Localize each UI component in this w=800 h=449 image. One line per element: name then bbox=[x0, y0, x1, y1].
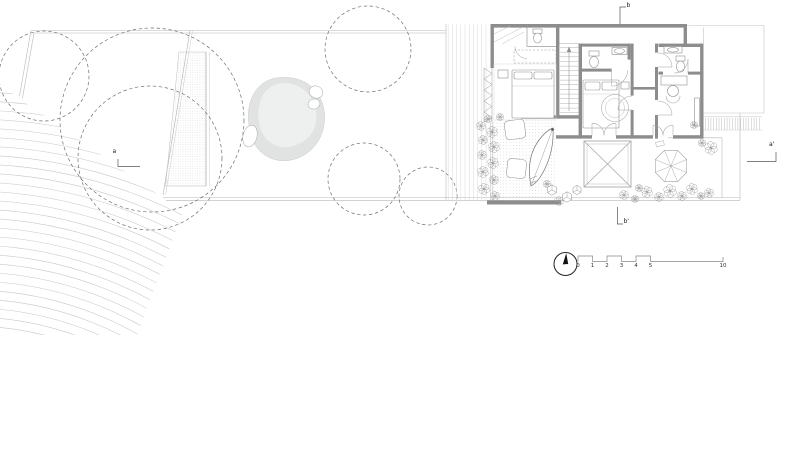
flower-icon bbox=[631, 195, 638, 202]
section-label-a: a bbox=[113, 149, 117, 155]
scale-label-3: 3 bbox=[620, 263, 624, 269]
flower-icon bbox=[697, 192, 704, 199]
flower-petal bbox=[624, 191, 628, 195]
contour-line bbox=[0, 326, 274, 449]
scale-label-5: 5 bbox=[649, 263, 653, 269]
flower-petal bbox=[639, 185, 642, 188]
gravel-driveway bbox=[163, 31, 210, 196]
flower-icon bbox=[484, 115, 491, 122]
section-label-b: b bbox=[627, 3, 631, 9]
shelf bbox=[695, 98, 700, 126]
toilet-tank bbox=[589, 51, 599, 56]
tree-canopy bbox=[0, 31, 89, 121]
rock-cube-icon bbox=[573, 185, 581, 194]
section-line-a-prime bbox=[747, 152, 776, 162]
flower-petal bbox=[494, 143, 499, 148]
contour-line bbox=[0, 164, 436, 449]
staircase bbox=[560, 44, 579, 113]
parasol-icon bbox=[655, 150, 686, 181]
scale-label-0: 0 bbox=[576, 263, 580, 269]
desk bbox=[661, 76, 687, 85]
bedside-table bbox=[621, 82, 629, 89]
toilet-tank bbox=[676, 56, 685, 61]
tree-canopies bbox=[0, 6, 457, 230]
site-plan-canvas: b b' a a' 0 1 2 3 4 5 10 bbox=[0, 0, 800, 449]
rock-cube-icon bbox=[563, 192, 572, 202]
flower-icon bbox=[690, 121, 697, 128]
bench bbox=[656, 141, 665, 147]
terrain-contours bbox=[0, 92, 508, 449]
contour-line bbox=[0, 146, 454, 449]
contour-line bbox=[0, 218, 382, 449]
flower-petal bbox=[647, 188, 652, 193]
toilet-icon bbox=[590, 57, 599, 68]
contour-line bbox=[0, 155, 445, 449]
sink-basin-icon bbox=[615, 49, 625, 54]
scale-label-4: 4 bbox=[634, 263, 638, 269]
flower-petal bbox=[484, 185, 489, 190]
contour-line bbox=[0, 254, 346, 449]
contour-line bbox=[0, 281, 319, 449]
bedside-table bbox=[498, 70, 508, 78]
contour-line bbox=[0, 290, 310, 449]
stepping-stone bbox=[504, 119, 526, 141]
rock-cube-icon bbox=[548, 185, 557, 195]
east-steps-hatch bbox=[706, 118, 760, 130]
tree-canopy bbox=[60, 28, 244, 212]
contour-line bbox=[0, 119, 481, 449]
scale-label-2: 2 bbox=[605, 263, 609, 269]
flower-petal bbox=[702, 140, 705, 143]
contour-line bbox=[0, 317, 283, 449]
flower-icon bbox=[687, 183, 698, 194]
section-line-b-prime bbox=[618, 207, 624, 224]
flower-icon bbox=[478, 166, 489, 177]
shutter-zigzag-icon bbox=[484, 68, 492, 122]
contour-line bbox=[0, 245, 355, 449]
section-line-b bbox=[620, 7, 626, 24]
sink-basin-icon bbox=[668, 48, 679, 52]
flower-icon bbox=[698, 139, 705, 146]
flower-icon bbox=[479, 183, 490, 194]
furniture bbox=[494, 24, 700, 128]
section-label-b-prime: b' bbox=[624, 219, 629, 225]
scale-label-1: 1 bbox=[591, 263, 595, 269]
contour-line bbox=[0, 272, 328, 449]
tree-canopy bbox=[325, 6, 411, 92]
flower-icon bbox=[705, 188, 714, 197]
contour-line bbox=[0, 263, 337, 449]
contour-line bbox=[0, 92, 508, 449]
gravel-strip bbox=[166, 52, 207, 186]
flower-icon bbox=[642, 186, 653, 197]
contour-line bbox=[0, 236, 364, 449]
flower-petal bbox=[500, 114, 503, 117]
flower-icon bbox=[477, 121, 486, 130]
contour-line bbox=[0, 128, 472, 449]
flower-petal bbox=[692, 185, 697, 190]
toilet-icon bbox=[534, 33, 542, 43]
contour-line bbox=[0, 227, 373, 449]
skylight bbox=[584, 141, 631, 187]
flower-icon bbox=[487, 126, 498, 137]
flower-petal bbox=[482, 151, 486, 155]
flower-petal bbox=[711, 143, 717, 149]
contour-line bbox=[0, 335, 265, 449]
pillow bbox=[514, 72, 532, 79]
courtyard-objects bbox=[504, 119, 687, 187]
flower-petal bbox=[670, 186, 676, 192]
flower-petal bbox=[682, 192, 686, 196]
contour-line bbox=[0, 110, 490, 449]
closet-diagonals bbox=[494, 26, 524, 44]
desk-chair bbox=[668, 86, 679, 97]
flower-petal bbox=[483, 168, 488, 173]
flower-icon bbox=[489, 141, 500, 152]
deck-edge-wall bbox=[487, 201, 561, 205]
north-compass-icon bbox=[554, 253, 577, 276]
scale-bar bbox=[578, 256, 723, 262]
flower-petal bbox=[547, 181, 550, 184]
flower-petal bbox=[494, 176, 498, 180]
tree-canopy bbox=[328, 143, 400, 215]
contour-line bbox=[0, 182, 418, 449]
flower-petal bbox=[495, 192, 499, 196]
toilet-icon bbox=[676, 61, 684, 72]
contour-line bbox=[0, 299, 301, 449]
flower-petal bbox=[483, 136, 487, 140]
pillow bbox=[534, 72, 552, 79]
contour-line bbox=[0, 173, 427, 449]
contour-line bbox=[0, 308, 292, 449]
contour-line bbox=[0, 209, 391, 449]
flower-petal bbox=[709, 189, 713, 193]
garden-pond bbox=[241, 77, 325, 160]
flower-icon bbox=[620, 190, 629, 199]
contour-line bbox=[0, 191, 409, 449]
west-facade-glazing bbox=[484, 68, 493, 200]
section-line-a bbox=[118, 159, 140, 167]
flower-icon bbox=[491, 191, 500, 200]
flower-icon bbox=[705, 141, 718, 154]
flower-petal bbox=[701, 193, 704, 196]
contour-line bbox=[0, 101, 499, 449]
pillow bbox=[585, 82, 600, 90]
stepping-stone bbox=[506, 158, 527, 179]
flower-petal bbox=[659, 193, 663, 197]
scale-label-10: 10 bbox=[720, 263, 727, 269]
veranda-deck bbox=[448, 25, 486, 202]
flower-icon bbox=[664, 184, 677, 197]
flower-icon bbox=[496, 113, 503, 120]
flower-icon bbox=[678, 191, 687, 200]
section-markers bbox=[118, 7, 776, 224]
section-label-a-prime: a' bbox=[769, 142, 774, 148]
